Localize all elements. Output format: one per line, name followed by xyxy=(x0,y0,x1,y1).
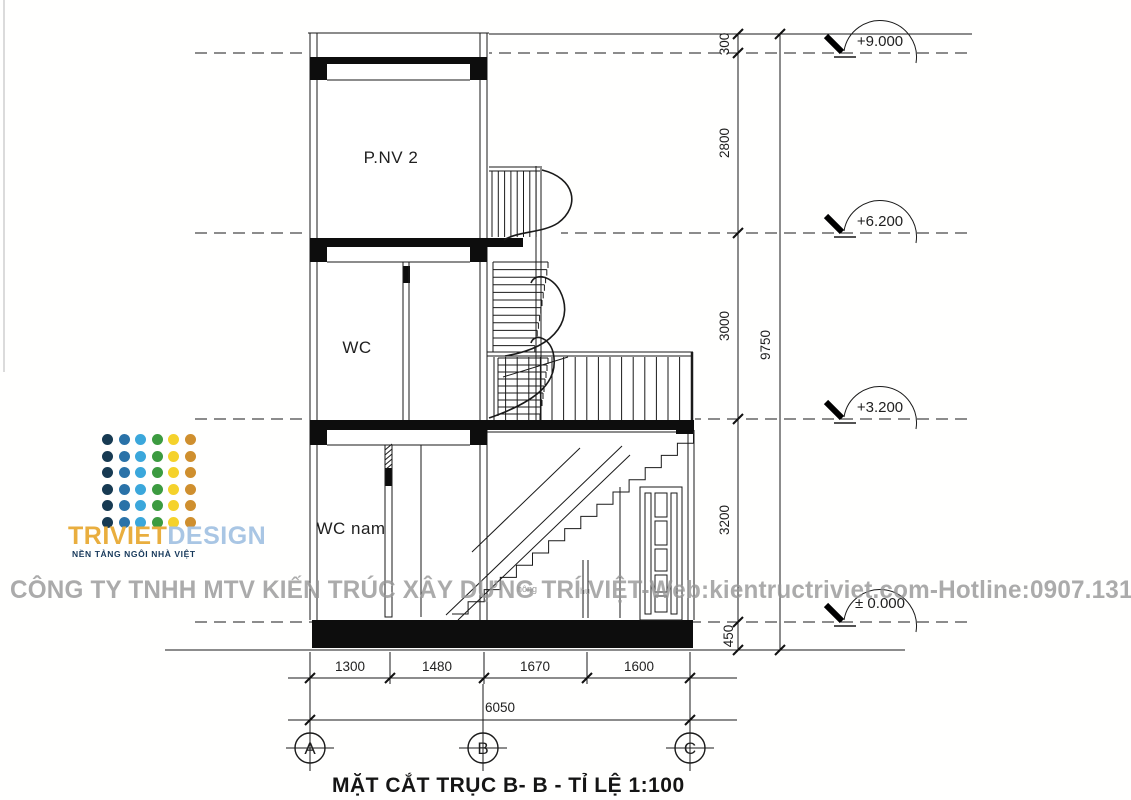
logo-name-part2: DESIGN xyxy=(167,522,266,550)
dim-1300: 1300 xyxy=(335,659,365,674)
dim-9750: 9750 xyxy=(758,330,773,360)
level-value-floor1: +3.200 xyxy=(857,399,903,416)
dim-1480: 1480 xyxy=(422,659,452,674)
room-label-wcnam: WC nam xyxy=(316,519,385,538)
dim-1600: 1600 xyxy=(624,659,654,674)
grid-label-a: A xyxy=(304,739,316,758)
ground-wall-lintel xyxy=(385,468,392,486)
dimension-ticks-horizontal xyxy=(305,673,695,725)
company-watermark: CÔNG TY TNHH MTV KIẾN TRÚC XÂY DỰNG TRÍ … xyxy=(10,576,1131,605)
section-drawing: +9.000 +6.200 +3.200 ± 0.000 300 2800 30… xyxy=(0,0,1131,800)
roof-slab xyxy=(310,57,487,64)
level-markers xyxy=(826,21,916,632)
level-value-floor2: +6.200 xyxy=(857,213,903,230)
dim-3200: 3200 xyxy=(717,505,732,535)
dim-1670: 1670 xyxy=(520,659,550,674)
dim-3000: 3000 xyxy=(717,311,732,341)
grid-bubbles xyxy=(286,725,714,771)
room-label-pnv2: P.NV 2 xyxy=(364,148,419,167)
level-value-roof: +9.000 xyxy=(857,33,903,50)
floor1-slab xyxy=(310,420,694,430)
dim-300: 300 xyxy=(717,33,732,56)
dim-2800: 2800 xyxy=(717,128,732,158)
logo-name-part1: TRIVIET xyxy=(68,522,167,550)
drawing-title: MẶT CẮT TRỤC B- B - TỈ LỆ 1:100 xyxy=(332,774,685,798)
grid-label-b: B xyxy=(477,739,488,758)
room-label-wc: WC xyxy=(342,338,371,357)
dim-6050: 6050 xyxy=(485,700,515,715)
logo-dot-grid xyxy=(102,434,196,528)
grid-label-c: C xyxy=(684,739,696,758)
floor2-slab xyxy=(310,238,523,247)
dim-450: 450 xyxy=(721,625,736,648)
logo-tagline: NỀN TẢNG NGÔI NHÀ VIỆT xyxy=(72,549,196,559)
logo-brand-text: TRIVIETDESIGN xyxy=(68,522,266,551)
architectural-sheet: +9.000 +6.200 +3.200 ± 0.000 300 2800 30… xyxy=(0,0,1131,800)
ground-slab xyxy=(312,620,693,648)
